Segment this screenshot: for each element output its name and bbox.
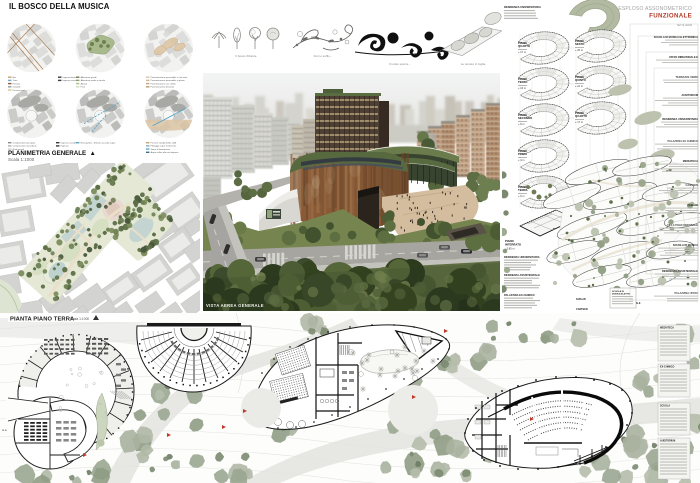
svg-text:Rain garden - Sistema raccolta: Rain garden - Sistema raccolta acque [81, 142, 117, 145]
svg-text:MEDIATECA: MEDIATECA [683, 159, 698, 163]
svg-text:VILLA POLIFUNZIONALE: VILLA POLIFUNZIONALE [667, 223, 698, 227]
svg-text:RESIDENZA ASSISTENZIALE: RESIDENZA ASSISTENZIALE [662, 269, 698, 273]
svg-text:RESIDENZA UNIVERSITARIA: RESIDENZA UNIVERSITARIA [504, 5, 541, 9]
svg-text:Vasca di laminazione: Vasca di laminazione [151, 149, 171, 151]
svg-text:+ 0 m: + 0 m [518, 194, 525, 198]
svg-text:MEDIATECA: MEDIATECA [660, 327, 674, 330]
svg-text:PALAZZINA EX-CHIMICO: PALAZZINA EX-CHIMICO [504, 293, 535, 297]
svg-text:SESTO: SESTO [575, 42, 585, 46]
svg-text:SECONDO: SECONDO [518, 116, 533, 120]
svg-text:+ 17 m: + 17 m [518, 50, 526, 54]
svg-text:Tram: Tram [13, 79, 18, 82]
svg-text:Percorsi stradali livello citt: Percorsi stradali livello cittA [151, 142, 177, 145]
svg-text:Pavimentazione drenante: Pavimentazione drenante [151, 86, 175, 89]
svg-text:PIANTA PIANO TERRA: PIANTA PIANO TERRA [10, 317, 75, 323]
svg-text:Scala 1:1000: Scala 1:1000 [70, 317, 89, 321]
svg-text:Ingresso carrabile: Ingresso carrabile [61, 142, 78, 145]
svg-text:Ingresso bosco: Ingresso bosco [63, 76, 78, 79]
svg-text:SCUOLA DI: SCUOLA DI [612, 290, 624, 293]
svg-text:MUSICA ELETTR.: MUSICA ELETTR. [612, 293, 631, 296]
svg-text:PALAZZINA UFFICI: PALAZZINA UFFICI [675, 291, 699, 295]
svg-text:Bus: Bus [13, 77, 17, 79]
svg-text:PRIMO: PRIMO [518, 152, 528, 156]
svg-text:Percorsi ped.: Percorsi ped. [13, 89, 26, 92]
svg-text:+ 4 m: + 4 m [518, 158, 525, 162]
svg-text:EX-CHIMICO: EX-CHIMICO [660, 366, 674, 369]
svg-text:TERRA: TERRA [518, 188, 528, 192]
svg-text:Ingresso: Ingresso [61, 145, 70, 148]
svg-text:SCUOLA DI MUSICA ELETTRONICA: SCUOLA DI MUSICA ELETTRONICA [654, 35, 698, 39]
svg-text:Filtraggio acque meteoriche: Filtraggio acque meteoriche [151, 145, 177, 148]
svg-text:Le texture in foglia: Le texture in foglia [461, 62, 486, 66]
svg-text:QUINTO: QUINTO [575, 78, 587, 82]
svg-text:Composizione secondaria: Composizione secondaria [13, 145, 38, 148]
svg-text:CANTEEN: CANTEEN [576, 308, 588, 311]
svg-text:Composizione principale: Composizione principale [13, 142, 36, 145]
svg-text:Il bosco filtrante: Il bosco filtrante [235, 54, 256, 58]
svg-text:Pavimentazione con clinker: Pavimentazione con clinker [151, 82, 177, 85]
svg-text:CANTEEN: CANTEEN [685, 183, 698, 187]
svg-text:PALAZZINA EX CHIMICO: PALAZZINA EX CHIMICO [667, 139, 698, 143]
svg-text:+ 9 m: + 9 m [518, 122, 525, 126]
svg-text:INTERRATO: INTERRATO [505, 242, 522, 246]
svg-text:RESIDENZA UNIVERSITARIA: RESIDENZA UNIVERSITARIA [504, 255, 540, 259]
svg-text:SCUOLA DI MUSICA: SCUOLA DI MUSICA [673, 243, 698, 247]
svg-text:AUDITORIUM: AUDITORIUM [681, 93, 698, 97]
svg-text:QUARTO: QUARTO [518, 44, 531, 48]
svg-text:+ 13 m: + 13 m [518, 86, 526, 90]
svg-text:FABLAB: FABLAB [687, 203, 698, 207]
svg-text:Alberature medie e piccole: Alberature medie e piccole [81, 79, 106, 82]
svg-text:Alberature grandi: Alberature grandi [81, 76, 97, 79]
svg-text:SETTE VERDI: SETTE VERDI [677, 25, 692, 27]
svg-text:TERRAZZE VERDI: TERRAZZE VERDI [676, 75, 699, 79]
svg-text:TERZO: TERZO [518, 80, 528, 84]
svg-text:RESIDENZA UNIVERSITARIA: RESIDENZA UNIVERSITARIA [662, 117, 698, 121]
svg-text:Ferrovia: Ferrovia [13, 82, 21, 85]
svg-text:Pavimentazione permeabile in c: Pavimentazione permeabile in calcestre [151, 76, 189, 79]
svg-text:+ 26 m: + 26 m [575, 48, 583, 52]
svg-text:+ 17 m: + 17 m [575, 120, 583, 124]
svg-text:Fiori e soffio...: Fiori e soffio... [314, 54, 333, 58]
svg-text:UFFICI DIREZIONALE E: UFFICI DIREZIONALE E [669, 55, 698, 59]
svg-text:Fronde spezie...: Fronde spezie... [389, 62, 411, 66]
svg-text:RESIDENZA ASSISTENZIALE: RESIDENZA ASSISTENZIALE [504, 273, 540, 277]
svg-text:VISTA AEREA GENERALE: VISTA AEREA GENERALE [206, 303, 264, 308]
svg-text:Acque reflue alla rete fognari: Acque reflue alla rete fognaria [151, 151, 180, 154]
svg-text:Pavimentazione permeabile in g: Pavimentazione permeabile in ghiaia [151, 79, 186, 82]
svg-text:FABLAB: FABLAB [576, 298, 586, 301]
svg-text:Prati: Prati [81, 86, 86, 89]
svg-text:Arbusti: Arbusti [81, 82, 88, 85]
svg-text:FUNZIONALE: FUNZIONALE [649, 13, 692, 20]
svg-text:ESPLOSO ASSONOMETRICO: ESPLOSO ASSONOMETRICO [618, 6, 692, 12]
svg-text:A.a: A.a [2, 428, 7, 432]
svg-text:QUARTO: QUARTO [575, 114, 588, 118]
svg-text:AUDITORIUM: AUDITORIUM [660, 440, 675, 443]
svg-text:Ciclabile: Ciclabile [13, 87, 22, 89]
svg-text:SCUOLA: SCUOLA [660, 405, 670, 408]
svg-text:+ 21 m: + 21 m [575, 84, 583, 88]
